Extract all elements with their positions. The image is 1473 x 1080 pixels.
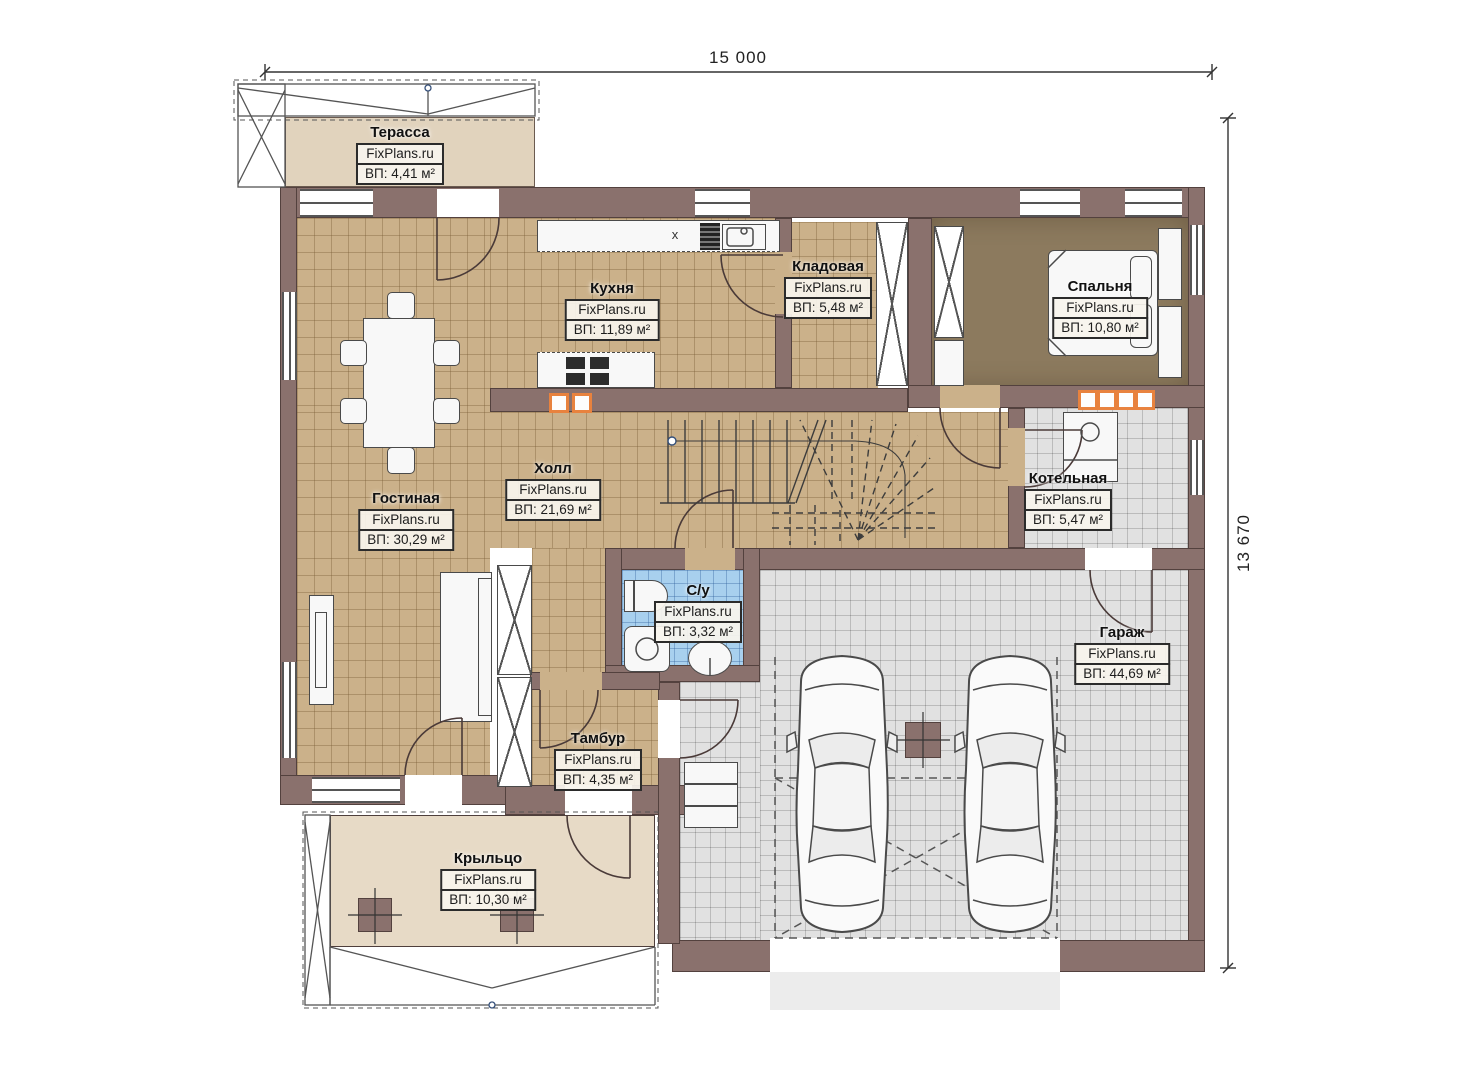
watermark: FixPlans.ru bbox=[358, 509, 454, 531]
room-name: Гостиная bbox=[358, 490, 454, 507]
chair bbox=[387, 292, 415, 319]
window bbox=[282, 292, 297, 380]
room-label-living: Гостиная FixPlans.ru ВП: 30,29 м² bbox=[358, 490, 454, 551]
chair bbox=[387, 447, 415, 474]
watermark: FixPlans.ru bbox=[505, 479, 601, 501]
wall-bedroom-left bbox=[908, 218, 932, 388]
garage-steps bbox=[684, 762, 738, 828]
watermark: FixPlans.ru bbox=[565, 299, 660, 321]
vent-shaft bbox=[572, 393, 592, 413]
dimension-width: 15 000 bbox=[709, 48, 767, 68]
floor-plan: x bbox=[0, 0, 1473, 1080]
door-opening-bedroom bbox=[940, 385, 1000, 408]
chair bbox=[433, 398, 460, 424]
vent-shaft bbox=[1078, 390, 1098, 410]
room-label-bedroom: Спальня FixPlans.ru ВП: 10,80 м² bbox=[1052, 278, 1148, 339]
window bbox=[282, 662, 297, 758]
room-label-pantry: Кладовая FixPlans.ru ВП: 5,48 м² bbox=[784, 258, 872, 319]
kitchen-sink bbox=[722, 224, 766, 250]
sofa-back bbox=[478, 578, 492, 716]
room-name: Кухня bbox=[565, 280, 660, 297]
watermark: FixPlans.ru bbox=[654, 601, 742, 623]
watermark: FixPlans.ru bbox=[554, 749, 642, 771]
room-name: С/у bbox=[654, 582, 742, 599]
garage-door-opening bbox=[770, 938, 1060, 972]
window bbox=[1125, 189, 1182, 217]
window bbox=[312, 777, 400, 803]
watermark: FixPlans.ru bbox=[356, 143, 444, 165]
room-area: ВП: 30,29 м² bbox=[358, 529, 454, 551]
window bbox=[1190, 440, 1204, 495]
toilet-tank bbox=[624, 580, 634, 612]
door-opening-boiler bbox=[1008, 428, 1025, 486]
room-area: ВП: 11,89 м² bbox=[565, 319, 660, 341]
tv-unit-inner bbox=[315, 612, 327, 688]
door-opening-bath bbox=[685, 548, 735, 570]
dimension-height: 13 670 bbox=[1234, 514, 1254, 572]
watermark: FixPlans.ru bbox=[1052, 297, 1148, 319]
room-label-hall: Холл FixPlans.ru ВП: 21,69 м² bbox=[505, 460, 601, 521]
vent-shaft bbox=[1135, 390, 1155, 410]
dining-table bbox=[363, 318, 435, 448]
fridge bbox=[700, 223, 720, 250]
window bbox=[1190, 225, 1204, 295]
room-area: ВП: 4,41 м² bbox=[356, 163, 444, 185]
room-area: ВП: 21,69 м² bbox=[505, 499, 601, 521]
room-area: ВП: 5,48 м² bbox=[784, 297, 872, 319]
wall-bath-left bbox=[605, 548, 622, 682]
wall-bath-right bbox=[743, 548, 760, 682]
wardrobe-hall bbox=[497, 677, 532, 787]
chair bbox=[340, 340, 367, 366]
bath-sink bbox=[688, 640, 732, 676]
wardrobe-bedroom-shelf bbox=[934, 340, 964, 386]
room-label-porch: Крыльцо FixPlans.ru ВП: 10,30 м² bbox=[440, 850, 536, 911]
wardrobe-hall bbox=[497, 565, 532, 675]
vent-shaft bbox=[1097, 390, 1117, 410]
room-label-terrace: Терасса FixPlans.ru ВП: 4,41 м² bbox=[356, 124, 444, 185]
stove-burner bbox=[566, 373, 585, 385]
room-area: ВП: 10,80 м² bbox=[1052, 317, 1148, 339]
room-area: ВП: 3,32 м² bbox=[654, 621, 742, 643]
room-label-garage: Гараж FixPlans.ru ВП: 44,69 м² bbox=[1074, 624, 1170, 685]
room-name: Кладовая bbox=[784, 258, 872, 275]
door-opening-terrace bbox=[437, 189, 499, 217]
stove-burner bbox=[566, 357, 585, 369]
door-opening-vestibule bbox=[540, 672, 602, 690]
window bbox=[300, 189, 373, 217]
room-label-boiler: Котельная FixPlans.ru ВП: 5,47 м² bbox=[1024, 470, 1112, 531]
room-name: Терасса bbox=[356, 124, 444, 141]
window bbox=[695, 189, 750, 217]
wardrobe-bedroom bbox=[934, 226, 964, 338]
porch-column bbox=[358, 898, 392, 932]
room-area: ВП: 5,47 м² bbox=[1024, 509, 1112, 531]
door-opening-living-porch bbox=[405, 775, 462, 805]
room-name: Гараж bbox=[1074, 624, 1170, 641]
stove-burner bbox=[590, 357, 609, 369]
room-label-vestibule: Тамбур FixPlans.ru ВП: 4,35 м² bbox=[554, 730, 642, 791]
window bbox=[1020, 189, 1080, 217]
watermark: FixPlans.ru bbox=[440, 869, 536, 891]
bedroom-radiator bbox=[1158, 306, 1182, 378]
watermark: FixPlans.ru bbox=[1024, 489, 1112, 511]
room-name: Котельная bbox=[1024, 470, 1112, 487]
room-area: ВП: 10,30 м² bbox=[440, 889, 536, 911]
hob-symbol: x bbox=[655, 227, 695, 242]
wardrobe bbox=[876, 222, 908, 386]
room-name: Спальня bbox=[1052, 278, 1148, 295]
chair bbox=[433, 340, 460, 366]
vent-shaft bbox=[549, 393, 569, 413]
watermark: FixPlans.ru bbox=[1074, 643, 1170, 665]
chair bbox=[340, 398, 367, 424]
bedroom-radiator bbox=[1158, 228, 1182, 300]
garage-column bbox=[905, 722, 941, 758]
vent-shaft bbox=[1116, 390, 1136, 410]
room-area: ВП: 44,69 м² bbox=[1074, 663, 1170, 685]
watermark: FixPlans.ru bbox=[784, 277, 872, 299]
room-area: ВП: 4,35 м² bbox=[554, 769, 642, 791]
room-name: Тамбур bbox=[554, 730, 642, 747]
room-label-kitchen: Кухня FixPlans.ru ВП: 11,89 м² bbox=[565, 280, 660, 341]
stove-burner bbox=[590, 373, 609, 385]
garage-apron bbox=[770, 972, 1060, 1010]
door-opening-garage-vestibule bbox=[658, 700, 680, 758]
room-label-bathroom: С/у FixPlans.ru ВП: 3,32 м² bbox=[654, 582, 742, 643]
room-name: Холл bbox=[505, 460, 601, 477]
door-opening-garage-boiler bbox=[1085, 548, 1152, 570]
wall-right bbox=[1188, 187, 1205, 972]
room-name: Крыльцо bbox=[440, 850, 536, 867]
